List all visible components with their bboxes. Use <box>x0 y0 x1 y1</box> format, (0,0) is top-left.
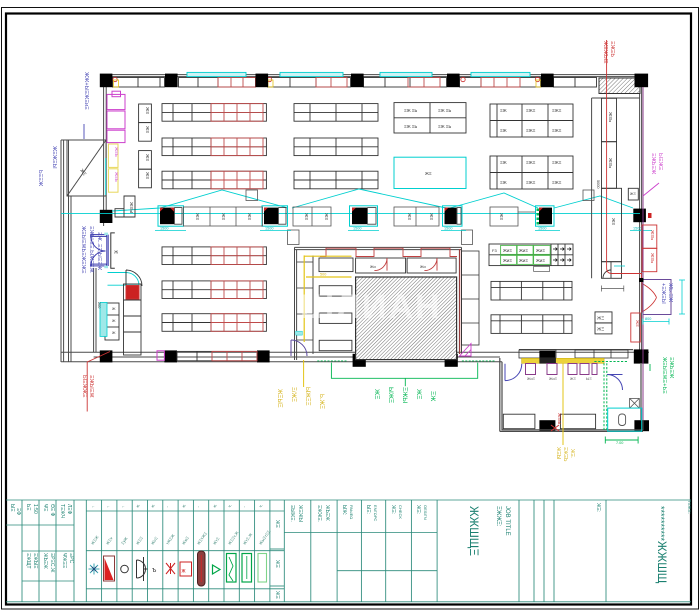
svg-text:ж: ж <box>182 569 186 575</box>
svg-text:ЫЖΞΞ: ЫЖΞΞ <box>304 387 310 406</box>
svg-text:ЖΞЖΞЫ: ЖΞЖΞЫ <box>51 146 57 169</box>
svg-text:ЈΟВ ΤΙΤLΕ: ЈΟВ ΤΙΤLΕ <box>504 506 510 536</box>
svg-text:ЖΞ: ЖΞ <box>195 213 200 220</box>
svg-text:ЖΞ: ЖΞ <box>425 171 432 176</box>
svg-text:ЖΞ: ЖΞ <box>597 327 604 332</box>
svg-text:1500: 1500 <box>538 227 546 231</box>
svg-text:ЖΞ.: ЖΞ. <box>569 449 575 458</box>
svg-text:1500: 1500 <box>444 227 452 231</box>
svg-text:Ж: Ж <box>112 319 116 323</box>
svg-text:ΨΞ: ΨΞ <box>42 504 48 512</box>
svg-text:ЖΞ: ЖΞ <box>630 192 637 196</box>
svg-text:ΞΡС: ΞΡС <box>68 553 74 564</box>
svg-text:ЖΞ: ЖΞ <box>415 389 422 399</box>
svg-text:ЖΞЫ: ЖΞЫ <box>555 447 561 460</box>
svg-text:ΞЖΞЬ: ΞЖΞЬ <box>562 447 568 462</box>
svg-text:ΞЖЬΞЖ: ΞЖЬΞЖ <box>668 357 674 379</box>
svg-text:ΞЖ: ΞЖ <box>500 128 507 133</box>
svg-text:ЖΞ: ЖΞ <box>145 154 150 161</box>
svg-text:ЖЬΞЖ: ЖЬΞЖ <box>324 505 330 521</box>
svg-text:ЖиΞ: ЖиΞ <box>519 248 528 253</box>
svg-text:800: 800 <box>645 317 651 321</box>
svg-text:Жи: Жи <box>370 265 376 269</box>
svg-text:1500: 1500 <box>633 227 641 231</box>
svg-text:ЫΞЖΞ: ЫΞЖΞ <box>657 153 663 171</box>
svg-text:ЖΞ: ЖΞ <box>221 213 226 220</box>
svg-text:500: 500 <box>320 273 326 277</box>
svg-text:ЖΞЬ: ЖΞЬ <box>608 158 613 168</box>
svg-text:ЖΞЫΞЖЬΞЖΞЖΞ: ЖΞЫΞЖЬΞЖΞЖΞ <box>80 226 86 274</box>
svg-text:ЬΞ: ЬΞ <box>25 504 31 511</box>
svg-text:ЖЖШЩΞ: ЖЖШЩΞ <box>467 506 479 556</box>
svg-text:ЖΞ:: ЖΞ: <box>390 505 396 514</box>
svg-text:ЖиΞ: ЖиΞ <box>519 258 528 263</box>
svg-text:ЖиΞ: ЖиΞ <box>536 258 545 263</box>
svg-text:ΞЖΞ: ΞЖΞ <box>526 180 536 185</box>
svg-text:ЖΞ: ЖΞ <box>145 172 150 179</box>
svg-text:ЖΞ: ЖΞ <box>274 520 280 529</box>
svg-text:ЖиΞ: ЖиΞ <box>536 248 545 253</box>
svg-text:F3: F3 <box>492 248 497 253</box>
svg-text:ЖΞ: ЖΞ <box>597 316 604 321</box>
svg-text:ЖΞ: ЖΞ <box>145 126 150 133</box>
svg-text:ЖΞ: ЖΞ <box>247 213 252 220</box>
svg-text:ъ: ъ <box>152 567 157 574</box>
svg-text:ΞЖΞ: ΞЖΞ <box>526 108 536 113</box>
svg-text:ΞЖΞЬ: ΞЖΞЬ <box>609 41 615 57</box>
svg-text:ЫЖ:: ЫЖ: <box>341 505 347 515</box>
svg-text:ЖΞЫ: ЖΞЫ <box>129 202 134 213</box>
svg-text:Ж: Ж <box>112 331 116 335</box>
svg-text:**********ЖЖШЩ: **********ЖЖШЩ <box>655 506 667 584</box>
svg-text:1500: 1500 <box>353 227 361 231</box>
svg-text:ЖΞЫ: ЖΞЫ <box>557 413 562 424</box>
svg-text:ЖΞЬ: ЖΞЬ <box>650 253 655 263</box>
svg-text:ΞЖΞ: ΞЖΞ <box>552 180 562 185</box>
svg-text:ΞЖΞ: ΞЖΞ <box>552 128 562 133</box>
svg-text:ΞЖΞ: ΞЖΞ <box>526 128 536 133</box>
svg-text:ΞЖ ΞЬ: ΞЖ ΞЬ <box>438 108 451 113</box>
svg-text:ΨЖΞΞ: ΨЖΞΞ <box>61 553 67 569</box>
svg-text:ЖиΞ: ЖиΞ <box>503 248 512 253</box>
svg-text:ΞЖЩТ: ΞЖЩТ <box>25 553 31 569</box>
svg-text:+ΞЖΞЫ: +ΞЖΞЫ <box>660 283 666 304</box>
svg-text:ΞЖ..ΞΞ,ЫΞΞЖ: ΞЖ..ΞΞ,ЫΞΞЖ <box>96 232 102 271</box>
svg-text:ΤΞЖΞ:: ΤΞЖΞ: <box>687 500 692 514</box>
svg-text:200: 200 <box>97 302 101 308</box>
svg-text:Ξ/ЖΞ: Ξ/ЖΞ <box>290 387 296 402</box>
svg-text:ЖΞЫΞ: ЖΞЫΞ <box>276 389 282 408</box>
svg-text:ЬΞΞЖ: ЬΞΞЖ <box>37 170 43 187</box>
svg-text:ΟΕЅΙΓΝ: ΟΕЅΙΓΝ <box>423 505 428 520</box>
svg-text:ΞЖΞ: ΞЖΞ <box>526 160 536 165</box>
svg-text:ЖΞ: ЖΞ <box>407 213 412 220</box>
svg-text:ΞЖΞ: ΞЖΞ <box>552 160 562 165</box>
svg-text:ЖЬ.ΞЖ: ЖЬ.ΞЖ <box>667 283 673 303</box>
svg-text:ЖΞ: ЖΞ <box>373 389 380 399</box>
svg-text:Ж: Ж <box>112 307 116 311</box>
svg-text:ΞЖЫΞЖ: ΞЖЫΞЖ <box>88 375 94 398</box>
svg-text:ΞЖ ΞЬ: ΞЖ ΞЬ <box>438 124 451 129</box>
svg-text:ЖΞ: ЖΞ <box>499 213 504 220</box>
svg-text:ЖΞЖЫΞ: ЖΞЖЫΞ <box>602 41 608 64</box>
svg-text:ЫЖΞ: ЫЖΞ <box>387 387 394 403</box>
svg-text:ΞФ: ΞФ <box>15 508 21 515</box>
svg-text:Ь.ЖΞ: Ь.ЖΞ <box>318 394 324 409</box>
svg-text:ЖΞ: ЖΞ <box>570 377 577 381</box>
svg-text:ЫΞЖЖΞ: ЫΞЖЖΞ <box>81 375 87 398</box>
svg-text:ЖиΞ: ЖиΞ <box>549 377 558 381</box>
svg-text:ЖΞЫΞЖΞ+ЬΞ: ЖΞЫΞЖΞ+ЬΞ <box>661 357 667 394</box>
svg-text:ΞЖ ΞЬ: ΞЖ ΞЬ <box>404 124 417 129</box>
svg-text:ΞЖЫ: ΞЖЫ <box>401 387 408 403</box>
svg-text:ΞЫЖΞ.: ΞЫЖΞ. <box>289 505 295 522</box>
svg-text:ЖЖ+ЫΞЖΞиΞ: ЖЖ+ЫΞЖΞиΞ <box>83 72 89 110</box>
svg-text:ΞЖ: ΞЖ <box>500 180 507 185</box>
svg-text:ΞЖ: ΞЖ <box>500 108 507 113</box>
svg-text:ЖΞЬ: ЖΞЬ <box>114 147 119 157</box>
svg-text:ЖΞ: ЖΞ <box>324 213 329 220</box>
svg-text:ΞЖΞ: ΞЖΞ <box>552 108 562 113</box>
svg-text:ТΞЖЧ: ТΞЖЧ <box>59 504 65 518</box>
svg-text:ЖΞ: ЖΞ <box>274 560 280 569</box>
svg-text:ΡΑЫΕΩ: ΡΑЫΕΩ <box>349 505 354 519</box>
svg-text:1:50: 1:50 <box>32 504 38 514</box>
svg-text:5000: 5000 <box>596 180 600 188</box>
svg-text:ЖиΞ: ЖиΞ <box>503 258 512 263</box>
svg-text:ШЛИΑΗ: ШЛИΑΗ <box>300 288 442 326</box>
svg-text:ЖΞ: ЖΞ <box>429 213 434 220</box>
svg-text:ЖΞ: ЖΞ <box>145 107 150 114</box>
svg-text:ЖΞ:: ЖΞ: <box>415 505 421 514</box>
svg-text:ΞΡΞС.Ж: ΞΡΞС.Ж <box>49 553 55 573</box>
svg-text:ЫΞ: ЫΞ <box>586 377 592 381</box>
svg-text:ΘΞ Ф: ΘΞ Ф <box>49 504 55 517</box>
svg-text:ЛΞФ: ЛΞФ <box>66 504 72 515</box>
svg-text:ΞЖ ΞЬ: ΞЖ ΞЬ <box>404 108 417 113</box>
svg-text:ЖΞ: ЖΞ <box>635 320 640 327</box>
svg-text:ΞЖЬΞЖ: ΞЖЬΞЖ <box>650 153 656 175</box>
svg-text:1500: 1500 <box>265 227 273 231</box>
svg-text:ЖΞ:: ЖΞ: <box>595 503 601 512</box>
svg-text:ΞЖЫ.ΞΞ.ЫЖΞΞЖ: ΞЖЫ.ΞΞ.ЫЖΞΞЖ <box>88 226 94 274</box>
svg-text:ΞЖ: ΞЖ <box>500 160 507 165</box>
svg-text:СΗΕСΚ: СΗΕСΚ <box>398 505 403 519</box>
svg-text:ΞЖ: ΞЖ <box>429 391 436 401</box>
svg-text:7.00: 7.00 <box>616 441 623 445</box>
svg-text:ЫΞ: ЫΞ <box>9 504 15 512</box>
svg-text:ΞЖЖΞ:: ΞЖЖΞ: <box>495 506 501 527</box>
svg-text:Жи: Жи <box>420 265 426 269</box>
svg-text:ЖΞЬ: ЖΞЬ <box>114 172 119 182</box>
svg-text:ΕΝΓΩΡС: ΕΝΓΩΡС <box>373 505 378 521</box>
svg-text:ЖΞЬ: ЖΞЬ <box>650 230 655 240</box>
svg-text:ЖΞЬ: ЖΞЬ <box>608 112 613 122</box>
svg-text:ЫΞ:: ЫΞ: <box>365 505 371 514</box>
svg-text:ΞЖЖΞ.: ΞЖЖΞ. <box>316 505 322 522</box>
svg-text:ЖЬΞЖ: ЖЬΞЖ <box>42 553 48 569</box>
svg-text:ЖΞ: ЖΞ <box>611 218 616 225</box>
svg-text:1500: 1500 <box>160 227 168 231</box>
svg-text:ЖΞЖЫ: ЖΞЖЫ <box>297 505 303 522</box>
svg-text:ΞЖЫΞ: ΞЖЫΞ <box>32 553 38 569</box>
svg-text:ЖΞ: ЖΞ <box>274 591 280 600</box>
svg-text:ЖΞ: ЖΞ <box>304 213 309 220</box>
svg-text:ЖиΞ: ЖиΞ <box>527 377 536 381</box>
